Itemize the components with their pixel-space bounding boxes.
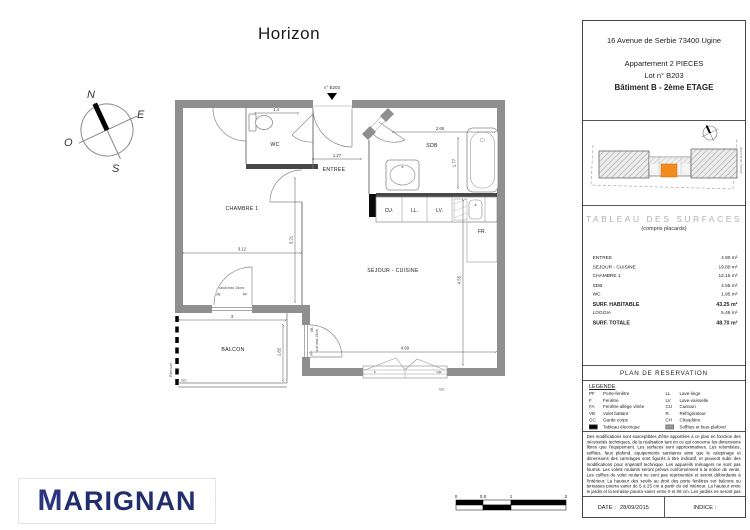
building-wing-left bbox=[599, 151, 649, 178]
compass-s-label: S bbox=[112, 163, 120, 175]
chambre-door bbox=[270, 170, 302, 202]
windows bbox=[212, 106, 447, 378]
date-label: DATE : bbox=[598, 505, 616, 511]
dim-sdb-height: 1.77 bbox=[452, 158, 457, 167]
lot-number: Lot n° B203 bbox=[583, 71, 745, 80]
page-title: Horizon bbox=[258, 24, 320, 44]
chambre-french-door bbox=[212, 305, 252, 313]
street-label: Avenue de Serbie bbox=[739, 147, 743, 174]
row-value: 12.15 m² bbox=[718, 272, 737, 281]
legend-label: Lave-linge bbox=[679, 391, 745, 398]
legend-label: Tableau électrique bbox=[603, 425, 665, 432]
row-value: 4.55 m² bbox=[721, 282, 737, 291]
table-row: SDB4.55 m² bbox=[593, 282, 738, 291]
plan-sheet: Horizon N E O S bbox=[0, 0, 750, 530]
row-label: CHAMBRE 1 bbox=[593, 272, 621, 281]
seuil-sejour-label: seuil max 15cm bbox=[315, 329, 319, 353]
electrical-panel-icon bbox=[589, 425, 603, 432]
project-info: 16 Avenue de Serbie 73400 Ugine Appartem… bbox=[583, 21, 745, 121]
title-block: 16 Avenue de Serbie 73400 Ugine Appartem… bbox=[582, 20, 746, 518]
compass-n-label: N bbox=[87, 89, 95, 101]
bathtub bbox=[467, 128, 498, 192]
apartment-type: Appartement 2 PIECES bbox=[583, 59, 745, 68]
legend-abbr: CH bbox=[665, 418, 679, 425]
row-label: SURF. TOTALE bbox=[593, 318, 630, 327]
dim-chambre-height: 3.21 bbox=[289, 235, 294, 244]
table-row-total: SURF. TOTALE48.70 m² bbox=[593, 318, 738, 327]
row-label: WC bbox=[593, 291, 601, 300]
legend-abbr: CU bbox=[665, 404, 679, 411]
row-value: 4.80 m² bbox=[721, 254, 737, 263]
scale-tick-1: 1 bbox=[510, 494, 513, 499]
legend-abbr: PF bbox=[589, 391, 603, 398]
legend-abbr: VB bbox=[589, 411, 603, 418]
closet-door bbox=[213, 108, 246, 141]
scale-bar: 0 0.5 1 2 bbox=[446, 490, 578, 522]
compass-rose: N E O S bbox=[62, 82, 154, 178]
legend-label: Volet battant bbox=[603, 411, 665, 418]
legend-label: Lave-vaisselle bbox=[679, 398, 745, 405]
row-value: 48.70 m² bbox=[716, 318, 737, 327]
table-row: LOGGIA5.45 m² bbox=[593, 309, 738, 318]
dim-wc-width: 1.4 bbox=[273, 107, 279, 112]
legend-label: Soffites et faux-plafond bbox=[679, 425, 745, 432]
pf-chambre-label: PF bbox=[243, 293, 249, 297]
compass-e-label: E bbox=[137, 109, 145, 121]
vb-chambre-label: VB bbox=[215, 293, 221, 297]
row-value: 1.95 m² bbox=[721, 291, 737, 300]
legend-label: Porte-fenêtre bbox=[603, 391, 665, 398]
date-value: 28/09/2015 bbox=[620, 505, 649, 511]
row-label: SEJOUR - CUISINE bbox=[593, 263, 636, 272]
disclaimer-text: Des modifications sont susceptibles d'êt… bbox=[583, 432, 744, 497]
soffit-icon bbox=[665, 425, 679, 432]
dim-sdb-width: 2.68 bbox=[436, 126, 445, 131]
legend-label: Cuisson bbox=[679, 404, 745, 411]
dim-balcon-width: 3 bbox=[231, 314, 234, 319]
dim-balcon-height: 1.82 bbox=[277, 347, 282, 356]
sejour-french-door bbox=[302, 325, 310, 357]
entrance-door bbox=[313, 108, 352, 147]
date-indice-row: DATE : 28/09/2015 INDICE : bbox=[583, 497, 745, 518]
row-label: SDB bbox=[593, 282, 603, 291]
logo-text: ARIGNAN bbox=[64, 486, 197, 516]
building-wing-right bbox=[691, 149, 737, 178]
toilet bbox=[249, 114, 273, 131]
legend-abbr: F bbox=[589, 398, 603, 405]
logo-initial: M bbox=[38, 484, 64, 517]
scale-tick-2: 2 bbox=[565, 494, 568, 499]
legend-label: Fenêtre allège vitrée bbox=[603, 404, 665, 411]
table-row-total: SURF. HABITABLE43.25 m² bbox=[593, 300, 738, 309]
fridge-area bbox=[467, 222, 497, 262]
table-row: ENTREE4.80 m² bbox=[593, 254, 738, 263]
unit-number-label: n° B203 bbox=[324, 85, 341, 90]
gc-balcon-label: GC bbox=[181, 379, 187, 383]
compass-o-label: O bbox=[64, 137, 73, 149]
pare-vue-label: Pare-vue bbox=[169, 363, 173, 377]
fixtures bbox=[249, 114, 498, 262]
surface-table-subtitle: (compris placards) bbox=[583, 226, 745, 232]
vb-sejour-label: VB bbox=[310, 327, 314, 333]
dim-entree-width: 1.27 bbox=[333, 153, 342, 158]
sejour-window bbox=[363, 358, 447, 378]
washbasin bbox=[386, 160, 419, 190]
wc-label: WC bbox=[270, 142, 279, 148]
row-label: ENTREE bbox=[593, 254, 612, 263]
row-label: SURF. HABITABLE bbox=[593, 300, 640, 309]
indice-cell: INDICE : bbox=[665, 497, 746, 518]
row-label: LOGGIA bbox=[593, 309, 611, 318]
sdb-label: SDB bbox=[426, 143, 438, 149]
legend-label: Réfrigérateur bbox=[679, 411, 745, 418]
legend-abbr: FA bbox=[589, 404, 603, 411]
legend-label: Fenêtre bbox=[603, 398, 665, 405]
address: 16 Avenue de Serbie 73400 Ugine bbox=[583, 21, 745, 45]
dim-sejour-width: 4.69 bbox=[401, 346, 410, 351]
disclaimer-box: Des modifications sont susceptibles d'êt… bbox=[583, 432, 745, 497]
marignan-logo: MARIGNAN bbox=[18, 478, 216, 524]
sejour-label: SEJOUR - CUISINE bbox=[367, 268, 419, 274]
electrical-panel-symbol bbox=[369, 194, 376, 217]
highlighted-unit bbox=[661, 164, 677, 177]
washer-label: LL. bbox=[411, 208, 418, 214]
surface-table-title: TABLEAU DES SURFACES bbox=[583, 214, 745, 224]
legend-label: Garde corps bbox=[603, 418, 665, 425]
legend-abbr: GC bbox=[589, 418, 603, 425]
legend-title: LEGENDE bbox=[589, 384, 745, 390]
dim-sejour-height: 4.55 bbox=[457, 275, 462, 284]
entrance-arrow bbox=[327, 93, 337, 100]
window-vr-label: VR bbox=[436, 371, 442, 375]
row-value: 19.80 m² bbox=[718, 263, 737, 272]
row-value: 5.45 m² bbox=[721, 309, 737, 318]
date-cell: DATE : 28/09/2015 bbox=[583, 497, 665, 518]
balcon-label: BALCON bbox=[221, 347, 244, 353]
exterior-walls bbox=[175, 100, 505, 376]
legend: LEGENDE PFPorte-fenêtre LLLave-linge FFe… bbox=[583, 381, 745, 432]
table-row: SEJOUR - CUISINE19.80 m² bbox=[593, 263, 738, 272]
cooktop-label: CU. bbox=[385, 208, 394, 214]
surface-table: TABLEAU DES SURFACES (compris placards) … bbox=[583, 206, 745, 366]
site-map: Avenue de Serbie bbox=[583, 121, 745, 206]
compass-needle bbox=[95, 104, 107, 130]
seuil-chambre-label: seuil max 15cm bbox=[219, 286, 244, 290]
table-row: CHAMBRE 112.15 m² bbox=[593, 272, 738, 281]
fridge-label: FR. bbox=[478, 229, 486, 235]
chambre-label: CHAMBRE 1 bbox=[226, 206, 259, 212]
floor-plan: n° B203 WC ENTREE CHAMBRE 1 SDB SEJOUR -… bbox=[165, 80, 515, 400]
row-value: 43.25 m² bbox=[716, 300, 737, 309]
site-compass-icon bbox=[698, 121, 722, 145]
entree-label: ENTREE bbox=[323, 167, 346, 173]
legend-label: Chaudière bbox=[679, 418, 745, 425]
gc-sejour-label: GC bbox=[439, 388, 445, 392]
dim-chambre-width: 3.12 bbox=[238, 247, 247, 252]
pf-sejour-label: PF bbox=[310, 350, 314, 356]
legend-abbr: LV bbox=[665, 398, 679, 405]
wc-door bbox=[292, 114, 313, 142]
indice-label: INDICE : bbox=[693, 505, 716, 511]
reservation-plan-header: PLAN DE RESERVATION bbox=[583, 366, 745, 381]
legend-abbr: LL bbox=[665, 391, 679, 398]
scale-tick-05: 0.5 bbox=[480, 494, 487, 499]
dishwasher-label: LV. bbox=[436, 208, 443, 214]
scale-tick-0: 0 bbox=[455, 494, 458, 499]
building-floor: Bâtiment B - 2ème ETAGE bbox=[583, 83, 745, 92]
legend-abbr: R. bbox=[665, 411, 679, 418]
table-row: WC1.95 m² bbox=[593, 291, 738, 300]
